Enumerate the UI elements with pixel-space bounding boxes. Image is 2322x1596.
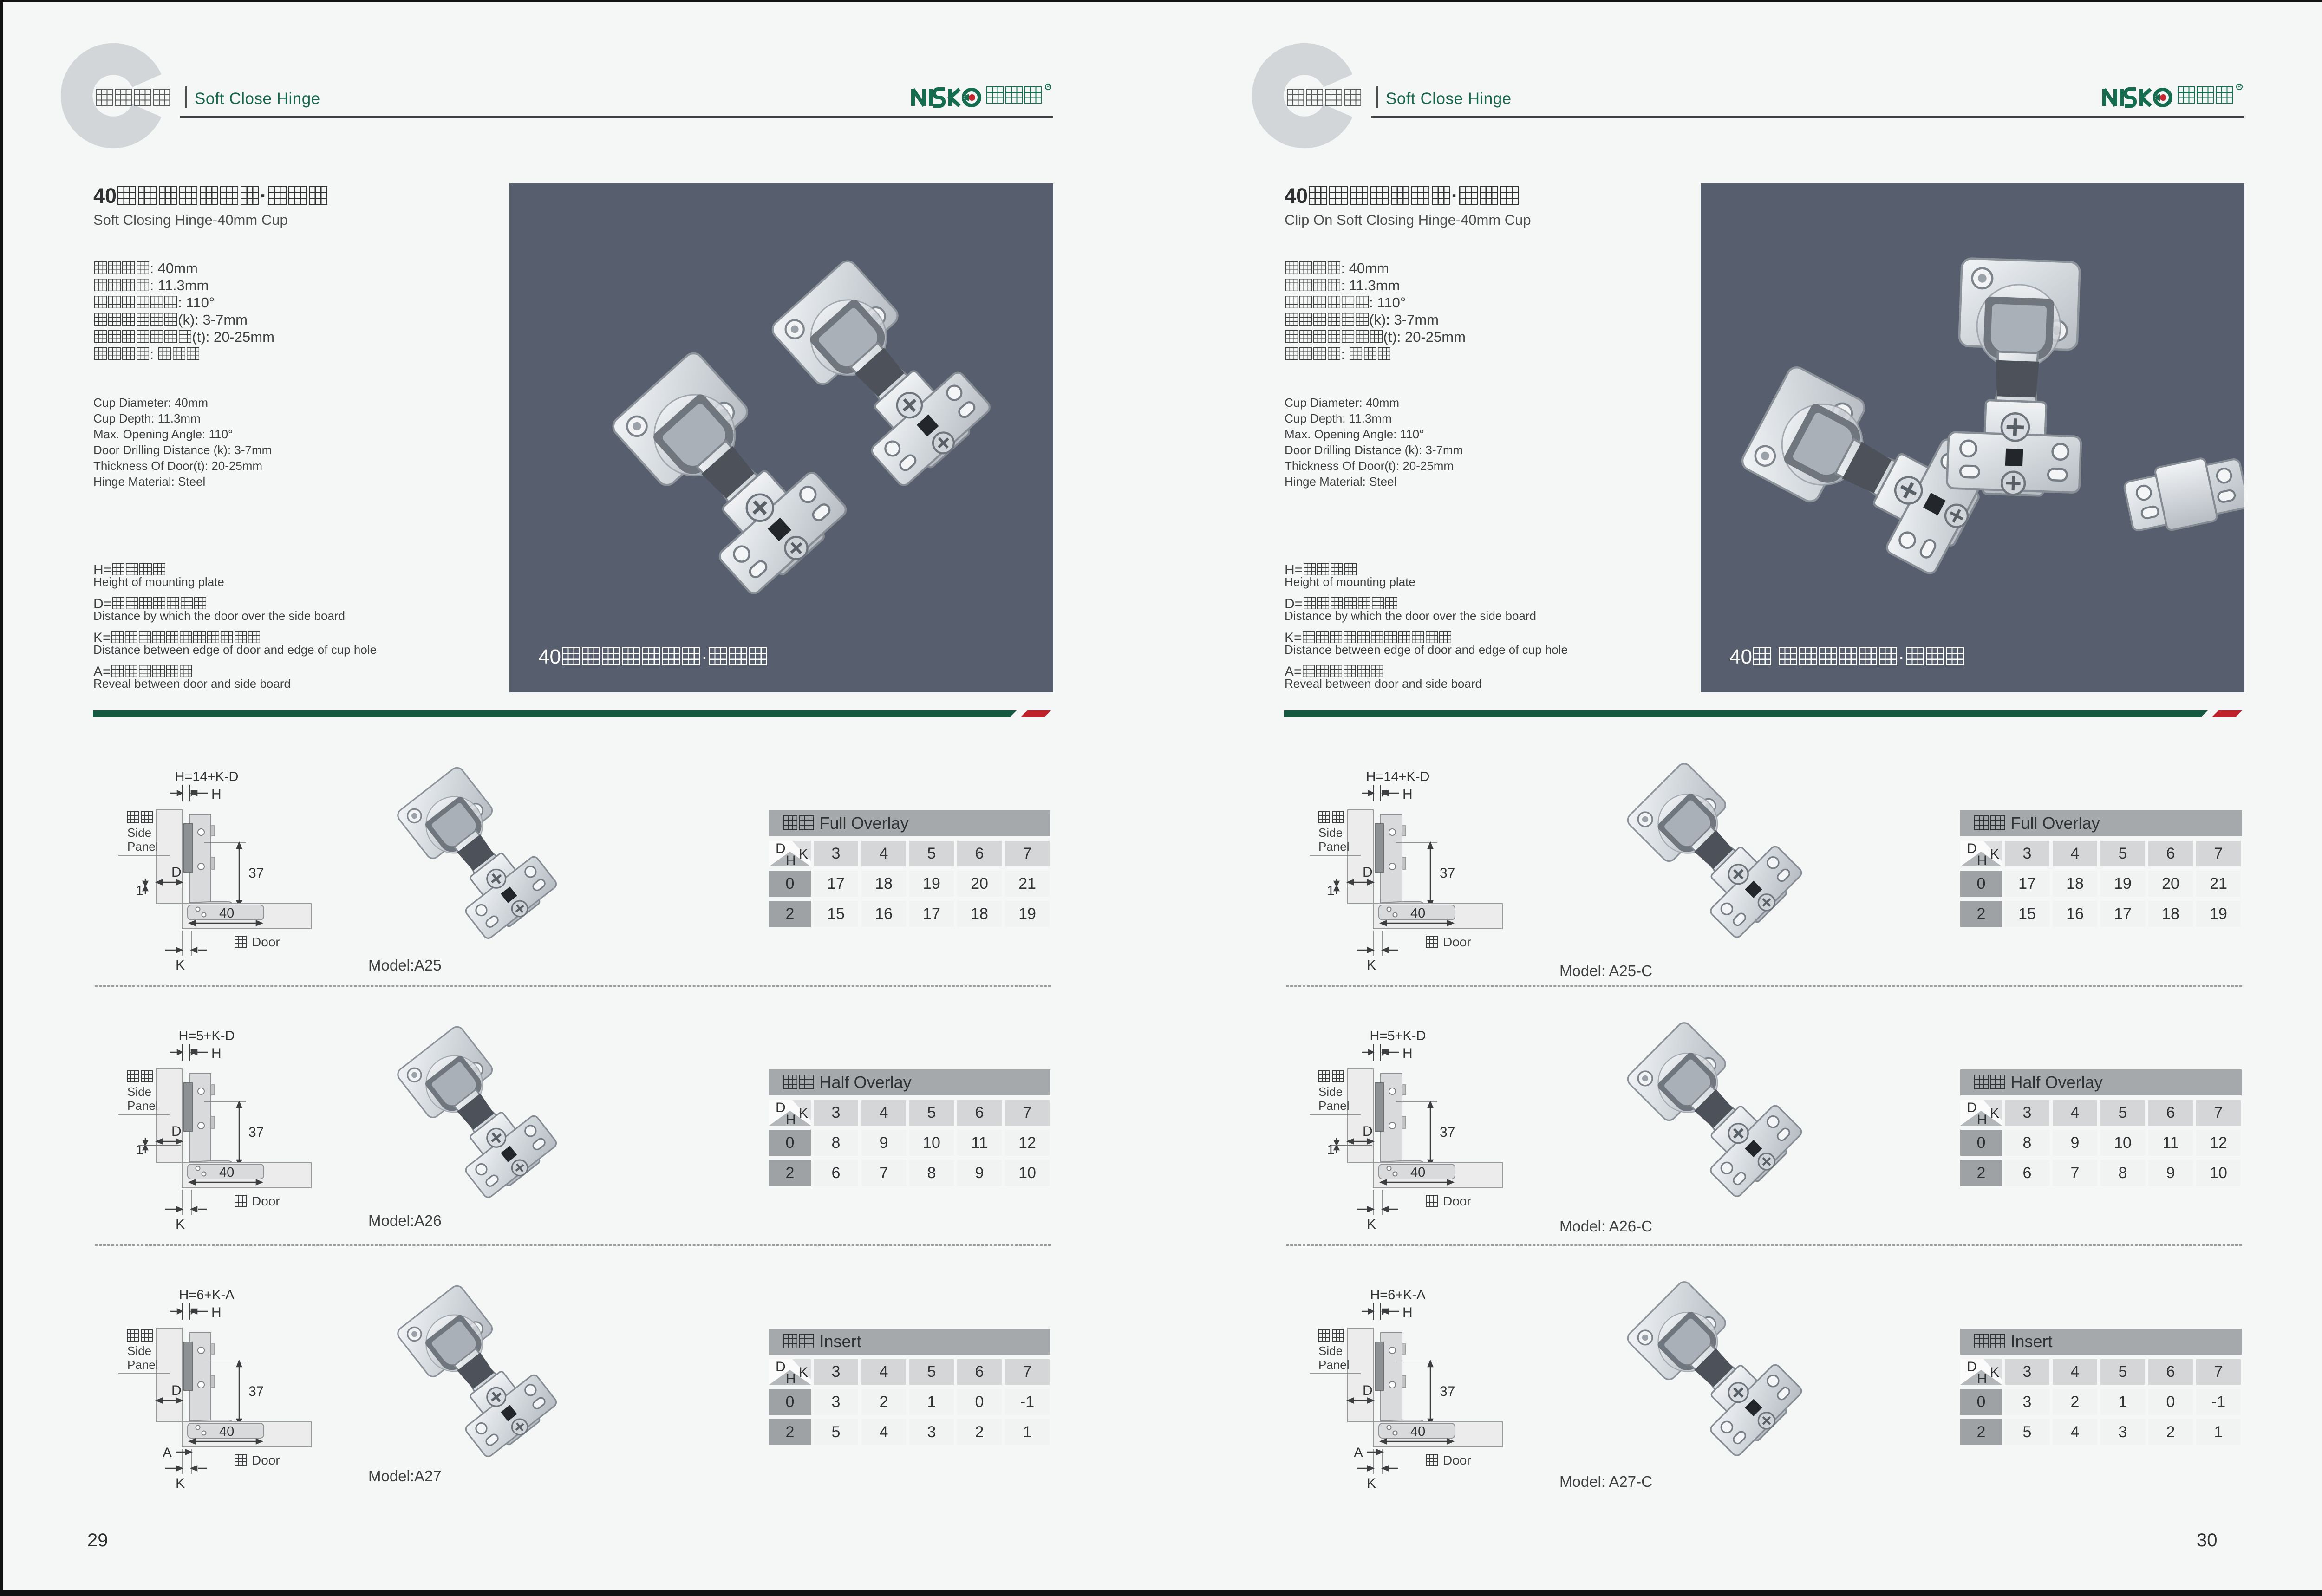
svg-text:D: D — [1363, 1383, 1373, 1398]
svg-text:Door: Door — [1443, 1194, 1471, 1208]
svg-text:40: 40 — [1410, 906, 1425, 921]
svg-text:40: 40 — [219, 906, 234, 921]
svg-text:D: D — [171, 1383, 182, 1398]
svg-text:Panel: Panel — [127, 1099, 158, 1113]
svg-text:K: K — [799, 847, 808, 862]
svg-text:K: K — [176, 1217, 185, 1230]
svg-text:H: H — [786, 1112, 796, 1126]
svg-text:Side: Side — [127, 1085, 151, 1099]
svg-text:H=14+K-D: H=14+K-D — [175, 769, 238, 784]
svg-text:Side: Side — [127, 1344, 151, 1358]
svg-text:D: D — [171, 1124, 182, 1139]
svg-text:1: 1 — [136, 883, 143, 899]
svg-text:H: H — [1402, 1046, 1413, 1061]
svg-text:K: K — [176, 1476, 185, 1489]
svg-text:K: K — [1367, 1217, 1376, 1230]
svg-text:K: K — [1990, 1106, 1999, 1121]
svg-text:H: H — [1402, 787, 1413, 802]
svg-text:A: A — [163, 1445, 172, 1460]
svg-text:Panel: Panel — [1318, 1099, 1350, 1113]
svg-text:1: 1 — [136, 1142, 143, 1158]
svg-text:H=6+K-A: H=6+K-A — [179, 1288, 235, 1303]
svg-text:K: K — [1367, 1476, 1376, 1489]
svg-text:Panel: Panel — [1318, 840, 1350, 853]
svg-text:Side: Side — [1318, 826, 1343, 840]
svg-text:D: D — [776, 1100, 786, 1115]
svg-text:H: H — [211, 1305, 222, 1320]
svg-text:Door: Door — [252, 1453, 280, 1467]
svg-text:H=5+K-D: H=5+K-D — [179, 1029, 235, 1043]
svg-text:Side: Side — [127, 826, 151, 840]
svg-text:H: H — [786, 853, 796, 866]
svg-text:37: 37 — [248, 1125, 264, 1140]
svg-text:40: 40 — [1410, 1424, 1425, 1439]
svg-text:Door: Door — [252, 935, 280, 949]
svg-text:Door: Door — [252, 1194, 280, 1208]
svg-text:K: K — [1367, 958, 1376, 971]
svg-text:K: K — [799, 1106, 808, 1121]
svg-text:Side: Side — [1318, 1344, 1343, 1358]
svg-text:Side: Side — [1318, 1085, 1343, 1099]
svg-text:H=14+K-D: H=14+K-D — [1366, 769, 1429, 784]
svg-text:Panel: Panel — [127, 840, 158, 853]
svg-text:H: H — [1977, 853, 1987, 866]
svg-text:H: H — [1402, 1305, 1413, 1320]
svg-text:H: H — [211, 1046, 222, 1061]
svg-text:40: 40 — [219, 1424, 234, 1439]
svg-text:D: D — [1363, 1124, 1373, 1139]
svg-text:Door: Door — [1443, 935, 1471, 949]
svg-text:D: D — [1363, 865, 1373, 880]
svg-text:Door: Door — [1443, 1453, 1471, 1467]
svg-text:D: D — [1967, 1100, 1977, 1115]
svg-text:40: 40 — [219, 1165, 234, 1180]
svg-text:K: K — [1990, 1365, 1999, 1380]
svg-text:40: 40 — [1410, 1165, 1425, 1180]
svg-text:K: K — [1990, 847, 1999, 862]
svg-text:K: K — [176, 958, 185, 971]
svg-text:37: 37 — [248, 1384, 264, 1399]
svg-text:37: 37 — [248, 866, 264, 881]
svg-text:Panel: Panel — [127, 1358, 158, 1372]
svg-text:H=5+K-D: H=5+K-D — [1370, 1029, 1426, 1043]
svg-text:H: H — [1977, 1112, 1987, 1126]
svg-text:37: 37 — [1440, 1384, 1455, 1399]
svg-text:37: 37 — [1440, 866, 1455, 881]
svg-text:H: H — [1977, 1371, 1987, 1385]
svg-text:D: D — [171, 865, 182, 880]
svg-text:H: H — [211, 787, 222, 802]
svg-text:H=6+K-A: H=6+K-A — [1370, 1288, 1426, 1303]
svg-text:D: D — [776, 1359, 786, 1375]
svg-text:H: H — [786, 1371, 796, 1385]
svg-text:D: D — [776, 841, 786, 856]
svg-text:D: D — [1967, 841, 1977, 856]
svg-text:1: 1 — [1327, 883, 1335, 899]
svg-text:1: 1 — [1327, 1142, 1335, 1158]
svg-text:Panel: Panel — [1318, 1358, 1350, 1372]
svg-text:37: 37 — [1440, 1125, 1455, 1140]
svg-text:D: D — [1967, 1359, 1977, 1375]
svg-text:A: A — [1354, 1445, 1363, 1460]
svg-text:K: K — [799, 1365, 808, 1380]
